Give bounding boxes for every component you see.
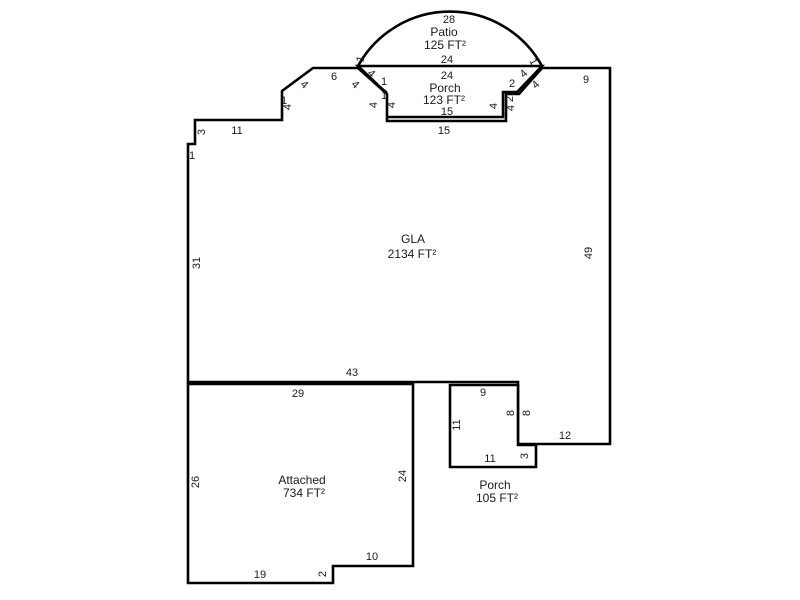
dimension-label: 2 [509, 78, 515, 90]
area-name-label: Porch [479, 478, 510, 492]
dimension-label: 11 [484, 453, 495, 465]
dimension-label: 24 [397, 470, 409, 482]
dimension-label: 28 [443, 14, 455, 26]
area-size-label: 734 FT² [283, 486, 325, 500]
dimension-label: 24 [441, 70, 453, 82]
area-name-label: Patio [430, 25, 458, 39]
dimension-label: 1 [381, 90, 387, 102]
dimension-label: 49 [583, 247, 595, 259]
dimension-label: 26 [190, 476, 202, 488]
dimension-label: 3 [196, 129, 208, 135]
dimension-label: 1 [381, 76, 387, 88]
dimension-label: 15 [438, 125, 450, 137]
area-name-label: Attached [278, 473, 325, 487]
area-name-label: GLA [401, 232, 425, 246]
dimension-label: 4 [505, 105, 517, 111]
area-size-label: 2134 FT² [388, 247, 437, 261]
dimension-label: 31 [191, 257, 203, 269]
dimension-label: 10 [366, 551, 378, 563]
dimension-label: 2 [504, 96, 516, 102]
dimension-label: 4 [282, 104, 294, 110]
area-size-label: 105 FT² [476, 491, 518, 505]
dimension-label: 15 [441, 106, 453, 118]
dimension-label: 8 [521, 410, 533, 416]
dimension-label: 11 [231, 125, 242, 137]
dimension-label: 12 [559, 430, 571, 442]
dimension-label: 19 [254, 569, 266, 581]
floorplan-sketch: 28Patio125 FT²241124Porch123 FT²15154411… [0, 0, 800, 600]
dimension-label: 8 [505, 410, 517, 416]
dimension-label: 9 [480, 387, 486, 399]
dimension-label: 3 [519, 453, 531, 459]
dimension-label: 11 [451, 419, 463, 430]
dimension-label: 24 [441, 54, 453, 66]
area-size-label: 125 FT² [424, 38, 466, 52]
dimension-label: 2 [317, 571, 329, 577]
floorplan-canvas: 28Patio125 FT²241124Porch123 FT²15154411… [0, 0, 800, 600]
dimension-label: 9 [583, 74, 589, 86]
dimension-label: 4 [488, 103, 500, 109]
dimension-label: 1 [189, 150, 195, 162]
dimension-label: 43 [346, 367, 358, 379]
dimension-label: 4 [386, 102, 398, 108]
dimension-label: 4 [368, 102, 380, 108]
dimension-label: 6 [331, 71, 337, 83]
dimension-label: 29 [292, 388, 304, 400]
